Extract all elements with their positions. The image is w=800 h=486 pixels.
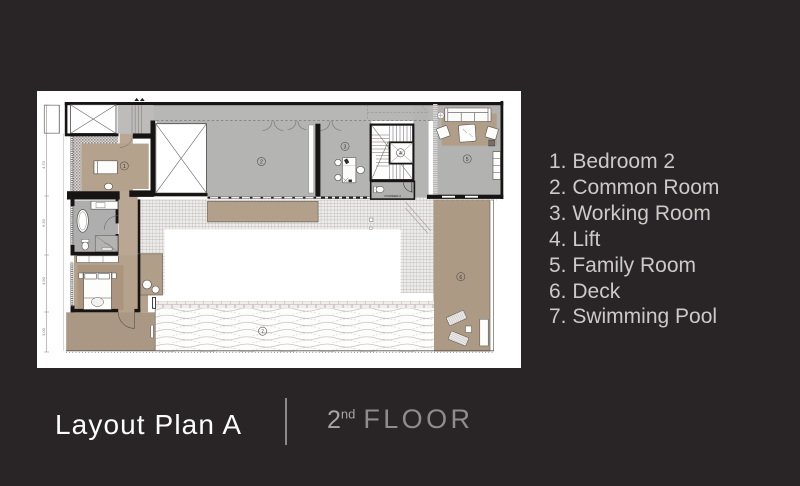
svg-text:4: 4 bbox=[399, 151, 402, 157]
svg-text:4.70: 4.70 bbox=[41, 160, 46, 169]
svg-text:3.00: 3.00 bbox=[41, 327, 46, 336]
svg-text:1: 1 bbox=[123, 164, 126, 170]
svg-text:2: 2 bbox=[260, 160, 263, 166]
svg-text:3: 3 bbox=[344, 144, 347, 150]
svg-text:4.90: 4.90 bbox=[41, 276, 46, 285]
svg-text:6.30: 6.30 bbox=[41, 218, 46, 227]
svg-text:7: 7 bbox=[261, 329, 264, 335]
svg-text:6: 6 bbox=[459, 275, 462, 281]
svg-text:5: 5 bbox=[466, 157, 469, 163]
svg-text:POWDER 2: POWDER 2 bbox=[385, 194, 402, 198]
